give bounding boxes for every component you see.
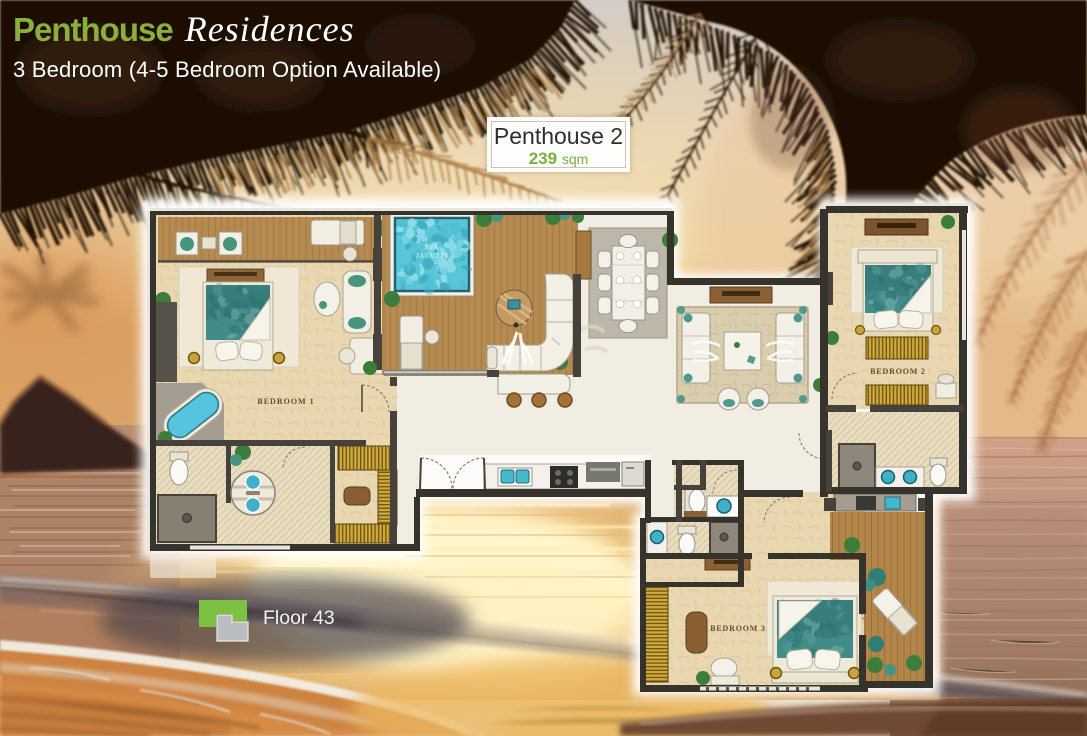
svg-text:JACUZZI: JACUZZI bbox=[416, 252, 448, 260]
svg-text:SPA: SPA bbox=[424, 243, 439, 251]
svg-text:BEDROOM 3: BEDROOM 3 bbox=[710, 624, 765, 633]
svg-text:BEDROOM 1: BEDROOM 1 bbox=[257, 397, 314, 406]
svg-text:BEDROOM 2: BEDROOM 2 bbox=[870, 367, 925, 376]
